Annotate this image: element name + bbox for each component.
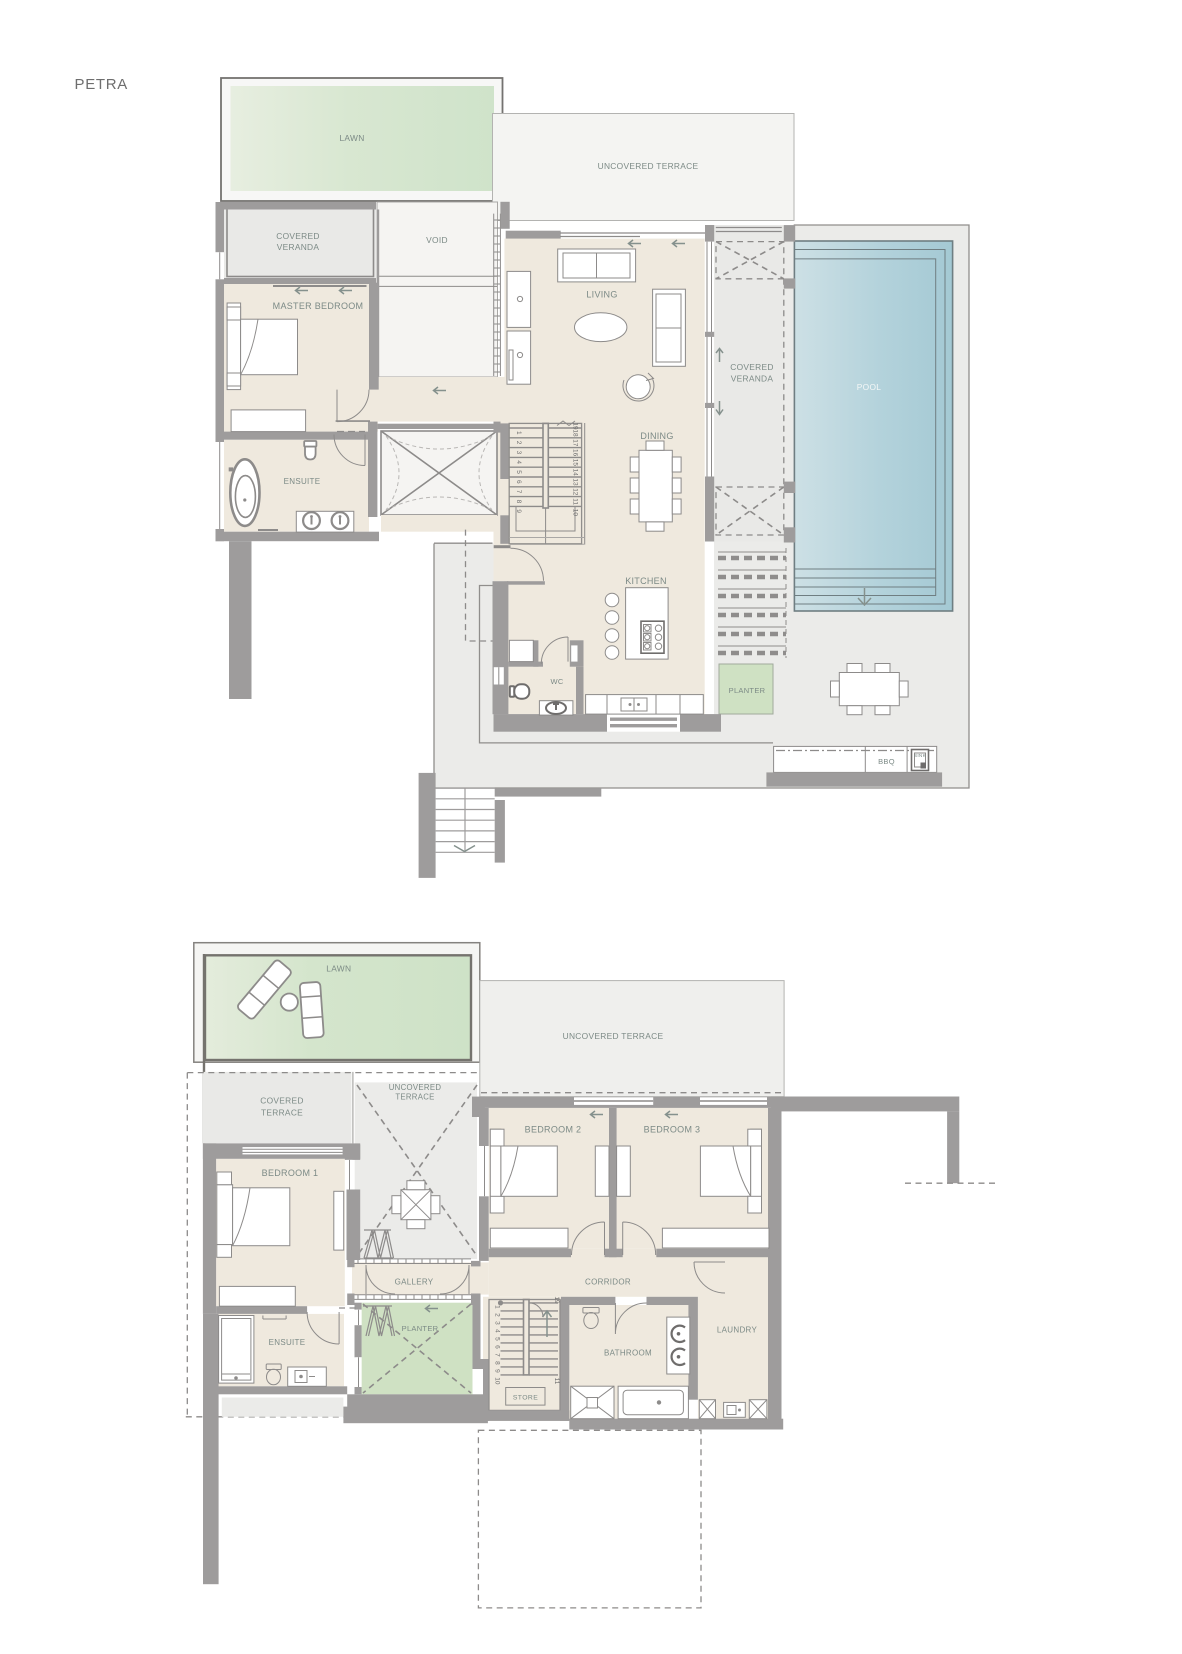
- svg-text:8: 8: [494, 1361, 501, 1365]
- svg-text:TERRACE: TERRACE: [395, 1093, 434, 1102]
- svg-text:LIVING: LIVING: [586, 290, 617, 300]
- svg-text:KITCHEN: KITCHEN: [625, 576, 667, 586]
- svg-text:7: 7: [494, 1353, 501, 1357]
- svg-text:2: 2: [494, 1313, 501, 1317]
- svg-text:3: 3: [515, 451, 522, 455]
- svg-text:9: 9: [494, 1369, 501, 1373]
- svg-text:BBQ: BBQ: [878, 757, 895, 766]
- svg-text:6: 6: [515, 480, 522, 484]
- svg-text:4: 4: [494, 1329, 501, 1333]
- svg-text:6: 6: [494, 1345, 501, 1349]
- svg-text:VERANDA: VERANDA: [731, 374, 774, 384]
- svg-text:5: 5: [494, 1337, 501, 1341]
- svg-text:9: 9: [515, 509, 522, 513]
- svg-text:TERRACE: TERRACE: [261, 1108, 303, 1118]
- svg-text:SINK: SINK: [914, 753, 927, 759]
- svg-text:DINING: DINING: [640, 431, 673, 441]
- svg-text:1: 1: [494, 1305, 501, 1309]
- svg-text:ENSUITE: ENSUITE: [284, 477, 321, 486]
- svg-text:7: 7: [515, 490, 522, 494]
- svg-text:13: 13: [572, 478, 579, 486]
- svg-text:14: 14: [572, 469, 579, 477]
- svg-text:10: 10: [572, 509, 579, 517]
- svg-text:MASTER BEDROOM: MASTER BEDROOM: [273, 301, 364, 311]
- svg-text:LAWN: LAWN: [339, 133, 364, 143]
- svg-text:11: 11: [553, 1378, 560, 1385]
- svg-text:STORE: STORE: [513, 1395, 538, 1402]
- svg-text:16: 16: [572, 449, 579, 457]
- svg-text:VERANDA: VERANDA: [277, 242, 320, 252]
- svg-text:10: 10: [494, 1377, 501, 1385]
- svg-text:COVERED: COVERED: [730, 362, 774, 372]
- svg-text:8: 8: [515, 500, 522, 504]
- svg-text:UNCOVERED TERRACE: UNCOVERED TERRACE: [598, 161, 699, 171]
- svg-text:PLANTER: PLANTER: [729, 686, 766, 695]
- svg-text:UNCOVERED: UNCOVERED: [389, 1083, 442, 1092]
- svg-text:PETRA: PETRA: [75, 76, 129, 93]
- svg-text:12: 12: [572, 488, 579, 496]
- svg-text:19: 19: [553, 1296, 560, 1304]
- svg-text:11: 11: [572, 498, 579, 505]
- svg-text:COVERED: COVERED: [276, 231, 320, 241]
- svg-text:PLANTER: PLANTER: [402, 1324, 439, 1333]
- svg-text:5: 5: [515, 470, 522, 474]
- svg-text:BEDROOM 1: BEDROOM 1: [262, 1168, 319, 1178]
- svg-text:LAWN: LAWN: [326, 964, 351, 974]
- svg-text:BEDROOM 2: BEDROOM 2: [525, 1125, 582, 1135]
- svg-text:4: 4: [515, 460, 522, 464]
- svg-text:COVERED: COVERED: [260, 1096, 304, 1106]
- svg-text:ENSUITE: ENSUITE: [269, 1338, 306, 1347]
- svg-text:3: 3: [494, 1321, 501, 1325]
- svg-text:LAUNDRY: LAUNDRY: [717, 1326, 758, 1335]
- svg-text:17: 17: [572, 439, 579, 447]
- svg-text:UNCOVERED TERRACE: UNCOVERED TERRACE: [563, 1031, 664, 1041]
- svg-text:BEDROOM 3: BEDROOM 3: [644, 1125, 701, 1135]
- svg-text:WC: WC: [550, 677, 563, 686]
- svg-text:BATHROOM: BATHROOM: [604, 1349, 652, 1358]
- svg-text:POOL: POOL: [857, 382, 882, 392]
- svg-text:18: 18: [572, 429, 579, 437]
- svg-text:GALLERY: GALLERY: [395, 1278, 434, 1287]
- svg-text:VOID: VOID: [426, 235, 448, 245]
- svg-text:CORRIDOR: CORRIDOR: [585, 1278, 631, 1287]
- svg-text:1: 1: [515, 431, 522, 435]
- svg-text:2: 2: [515, 441, 522, 445]
- svg-text:15: 15: [572, 459, 579, 467]
